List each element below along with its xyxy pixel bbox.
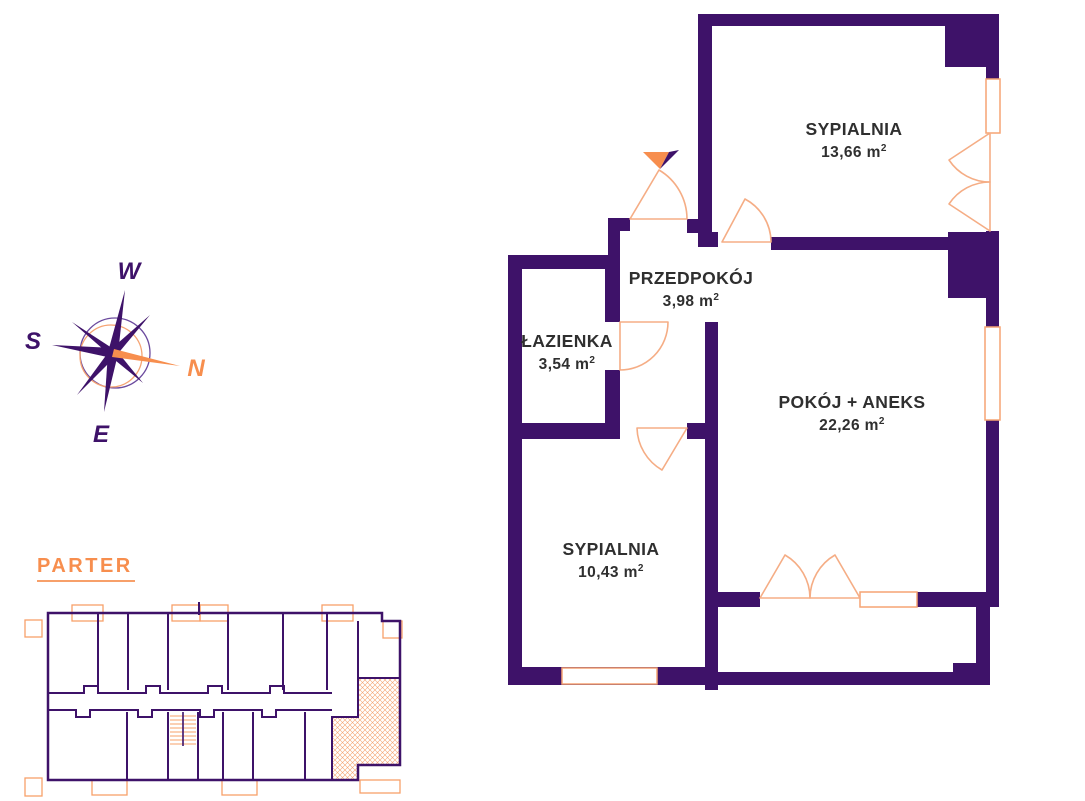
floor-plan-page: SYPIALNIA 13,66 m2 PRZEDPOKÓJ 3,98 m2 ŁA…: [0, 0, 1085, 801]
compass-label-west: W: [118, 258, 141, 286]
window: [986, 79, 1000, 133]
room-label-sypialnia-top: SYPIALNIA 13,66 m2: [806, 119, 903, 162]
french-door-arc: [949, 182, 990, 231]
wall: [917, 592, 999, 607]
wall: [771, 237, 952, 250]
compass-label-south: S: [25, 328, 41, 356]
wall: [687, 219, 698, 233]
window: [562, 668, 657, 684]
room-label-pokoj-aneks: POKÓJ + ANEKS 22,26 m2: [778, 392, 925, 435]
room-area: 3,98 m2: [629, 292, 754, 312]
wall: [705, 592, 760, 607]
wall: [705, 322, 718, 690]
wall: [948, 232, 999, 298]
compass-label-north: N: [187, 355, 204, 383]
room-name: SYPIALNIA: [563, 539, 660, 561]
entrance-marker-icon: [643, 150, 679, 169]
room-label-sypialnia-bottom: SYPIALNIA 10,43 m2: [563, 539, 660, 582]
building-overview-plan: [25, 602, 402, 796]
bathroom-door-arc: [620, 322, 668, 370]
compass-label-east: E: [93, 421, 109, 449]
compass-rose-icon: [52, 290, 180, 412]
bedroom-door-arc: [637, 428, 687, 470]
room-name: PRZEDPOKÓJ: [629, 268, 754, 290]
wall: [707, 232, 718, 247]
floor-label-parter: PARTER: [37, 555, 135, 582]
window: [985, 327, 1000, 420]
balcony-wall: [718, 672, 976, 685]
room-label-przedpokoj: PRZEDPOKÓJ 3,98 m2: [629, 268, 754, 311]
entrance-door-arc: [630, 170, 687, 219]
room-area: 10,43 m2: [563, 563, 660, 583]
room-area: 3,54 m2: [521, 355, 613, 375]
room-name: SYPIALNIA: [806, 119, 903, 141]
balcony-door-arc: [810, 555, 860, 598]
room-area: 13,66 m2: [806, 143, 903, 163]
window: [860, 592, 917, 607]
french-door-arc: [949, 133, 990, 182]
bedroom-door-arc: [722, 199, 771, 242]
door-swing-arcs: [620, 133, 990, 598]
wall: [986, 420, 999, 607]
room-name: ŁAZIENKA: [521, 331, 613, 353]
room-label-lazienka: ŁAZIENKA 3,54 m2: [521, 331, 613, 374]
wall: [508, 255, 620, 269]
wall: [605, 269, 620, 322]
wall: [608, 218, 620, 256]
balcony-wall: [953, 663, 990, 685]
wall: [508, 423, 620, 439]
wall: [698, 14, 712, 247]
room-area: 22,26 m2: [778, 416, 925, 436]
wall: [986, 26, 999, 79]
balcony-door-arc: [760, 555, 810, 598]
wall: [508, 255, 522, 685]
room-name: POKÓJ + ANEKS: [778, 392, 925, 414]
